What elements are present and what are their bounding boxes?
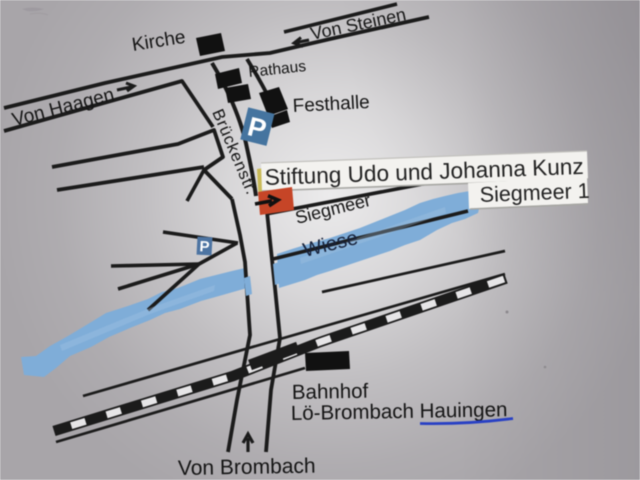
svg-text:Siegmeer 1: Siegmeer 1 bbox=[479, 179, 590, 207]
svg-text:P: P bbox=[199, 238, 210, 256]
svg-text:Festhalle: Festhalle bbox=[292, 92, 370, 117]
svg-text:Von Brombach: Von Brombach bbox=[178, 455, 316, 480]
